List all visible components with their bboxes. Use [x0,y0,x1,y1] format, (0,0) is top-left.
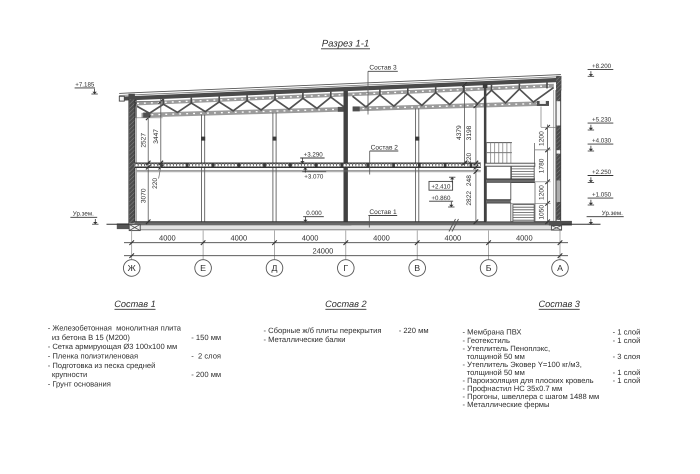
svg-text:3198: 3198 [466,125,473,140]
svg-text:3070: 3070 [140,188,147,203]
svg-text:4000: 4000 [373,233,390,242]
svg-text:- Металлические фермы: - Металлические фермы [463,400,550,409]
svg-text:1200: 1200 [538,185,545,200]
svg-text:+3.290: +3.290 [304,152,324,159]
svg-text:- 1 слой: - 1 слой [613,376,641,385]
svg-text:- 2 слоя: - 2 слоя [191,352,221,361]
svg-text:+7.185: +7.185 [75,81,95,88]
svg-text:- Грунт основания: - Грунт основания [48,380,111,389]
svg-text:Ур.зем.: Ур.зем. [602,210,623,217]
svg-text:4000: 4000 [516,233,533,242]
svg-text:24000: 24000 [312,246,333,255]
svg-text:Ж: Ж [128,263,136,273]
svg-text:Г: Г [343,263,348,273]
svg-text:4379: 4379 [456,125,463,140]
svg-text:- 150 мм: - 150 мм [191,333,221,342]
svg-text:Состав 3: Состав 3 [538,299,580,309]
svg-text:В: В [414,263,420,273]
svg-text:Состав 2: Состав 2 [371,144,399,151]
svg-text:4000: 4000 [230,233,247,242]
svg-text:Б: Б [486,263,492,273]
svg-text:А: А [557,263,563,273]
svg-text:3447: 3447 [153,129,160,144]
svg-text:- 1 слой: - 1 слой [613,336,641,345]
svg-text:- Сборные ж/б плиты перекрытия: - Сборные ж/б плиты перекрытия [264,326,382,335]
svg-text:Е: Е [200,263,206,273]
svg-text:Состав 1: Состав 1 [369,209,397,216]
svg-text:0.000: 0.000 [306,210,322,217]
svg-text:+8.200: +8.200 [592,63,612,70]
svg-text:+2.410: +2.410 [431,183,451,190]
svg-text:1200: 1200 [538,131,545,146]
svg-text:- 220 мм: - 220 мм [399,326,429,335]
svg-text:Состав 2: Состав 2 [325,299,366,309]
svg-text:Разрез 1-1: Разрез 1-1 [322,39,370,50]
svg-text:4000: 4000 [159,233,176,242]
svg-text:Состав 1: Состав 1 [114,299,155,309]
svg-text:1050: 1050 [538,205,545,220]
svg-text:+4.030: +4.030 [592,138,612,145]
svg-text:220: 220 [152,178,159,189]
svg-text:+3.070: +3.070 [304,173,324,180]
svg-text:Д: Д [272,263,278,273]
svg-text:Состав 3: Состав 3 [369,65,397,72]
svg-text:Ур.зем.: Ур.зем. [73,211,94,218]
svg-text:2527: 2527 [140,133,147,148]
svg-text:- Подготовка из песка средней: - Подготовка из песка средней [48,361,156,370]
svg-text:2822: 2822 [466,191,473,206]
svg-text:- 3 слоя: - 3 слоя [613,352,641,361]
svg-text:+2.250: +2.250 [592,169,612,176]
svg-text:1780: 1780 [538,158,545,173]
svg-text:- 200 мм: - 200 мм [191,370,221,379]
svg-text:220: 220 [466,152,473,163]
svg-text:- Металлические балки: - Металлические балки [264,335,346,344]
svg-text:- Пленка полиэтиленовая: - Пленка полиэтиленовая [48,352,138,361]
svg-text:из бетона В 15 (М200): из бетона В 15 (М200) [48,333,131,342]
svg-text:- Железобетонная монолитная п: - Железобетонная монолитная плита [48,323,182,332]
svg-text:+5.230: +5.230 [592,117,612,124]
svg-text:крупности: крупности [48,370,88,379]
svg-text:248: 248 [466,175,473,186]
svg-text:- Сетка армирующая Ø3 100х100: - Сетка армирующая Ø3 100х100 мм [48,342,178,351]
svg-text:4000: 4000 [445,233,462,242]
svg-text:+1.050: +1.050 [592,192,612,199]
svg-text:4000: 4000 [302,233,319,242]
